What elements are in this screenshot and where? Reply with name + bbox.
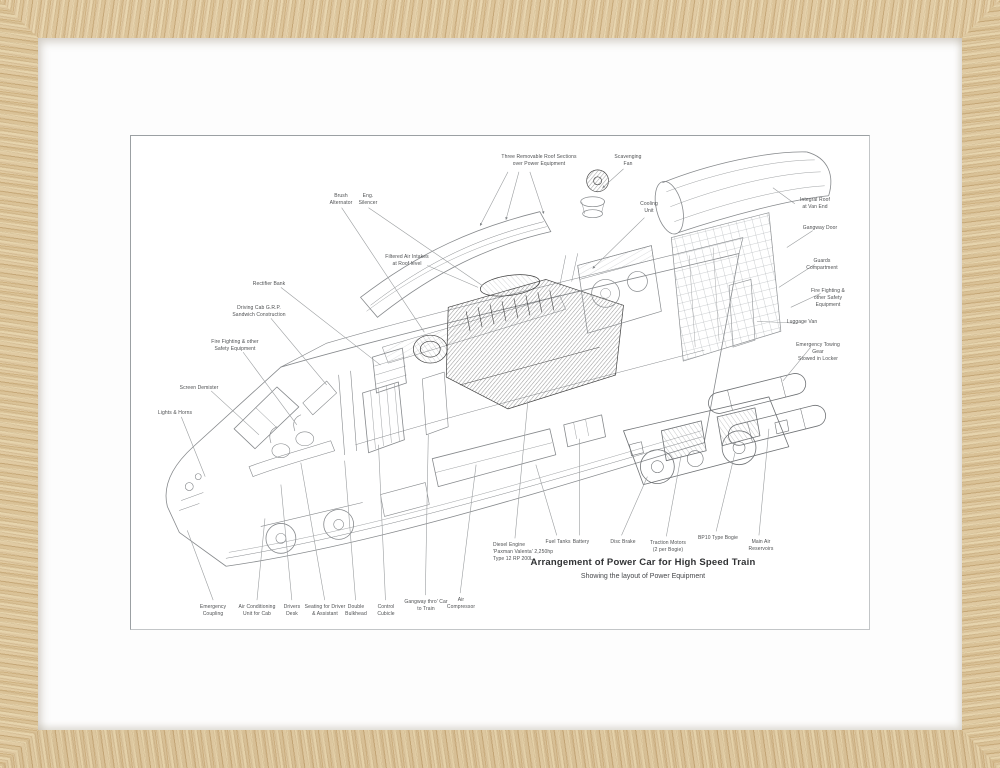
frame-left-rail <box>0 0 38 768</box>
label-gangway: Gangway thro' Car to Train <box>404 599 447 613</box>
label-fuel-tanks: Fuel Tanks <box>545 539 570 546</box>
label-guards-compartment: Guards Compartment <box>806 258 837 272</box>
label-rectifier-bank: Rectifier Bank <box>253 281 286 288</box>
label-main-air-reservoirs: Main Air Reservoirs <box>749 539 774 553</box>
label-emergency-coupling: Emergency Coupling <box>200 604 226 618</box>
label-roof-sections: Three Removable Roof Sections over Power… <box>501 154 576 168</box>
label-brush-alternator: Brush Alternator <box>330 193 353 207</box>
label-disc-brake: Disc Brake <box>610 539 635 546</box>
label-luggage-van: Luggage Van <box>787 319 817 326</box>
label-seating: Seating for Driver & Assistant <box>305 604 346 618</box>
label-filtered-air-intakes: Filtered Air Intakes at Roof level <box>385 254 428 268</box>
label-scavenging-fan: Scavenging Fan <box>614 154 641 168</box>
print-area: Three Removable Roof Sections over Power… <box>130 135 870 630</box>
label-air-compressor: Air Compressor <box>447 597 475 611</box>
label-drivers-desk: Drivers Desk <box>284 604 301 618</box>
label-fire-fighting-right: Fire Fighting & other Safety Equipment <box>808 288 849 308</box>
label-double-bulkhead: Double Bulkhead <box>345 604 367 618</box>
label-screen-demister: Screen Demister <box>180 385 219 392</box>
picture-frame: Three Removable Roof Sections over Power… <box>0 0 1000 768</box>
frame-top-rail <box>0 0 1000 38</box>
label-bp10-bogie: BP10 Type Bogie <box>698 535 738 542</box>
mat-board: Three Removable Roof Sections over Power… <box>38 38 962 730</box>
label-emergency-towing: Emergency Towing Gear Stowed in Locker <box>793 342 844 362</box>
label-driving-cab: Driving Cab G.R.P. Sandwich Construction <box>232 305 285 319</box>
label-integral-roof: Integral Roof at Van End <box>800 197 830 211</box>
label-fire-fighting-left: Fire Fighting & other Safety Equipment <box>211 339 258 353</box>
label-control-cubicle: Control Cubicle <box>377 604 394 618</box>
label-gangway-door: Gangway Door <box>803 225 838 232</box>
label-lights-horns: Lights & Horns <box>158 410 192 417</box>
frame-bottom-rail <box>0 730 1000 768</box>
print-subtitle: Showing the layout of Power Equipment <box>581 573 705 580</box>
print-title: Arrangement of Power Car for High Speed … <box>531 557 756 568</box>
label-cooling-unit: Cooling Unit <box>640 201 658 215</box>
frame-right-rail <box>962 0 1000 768</box>
label-eng-silencer: Eng. Silencer <box>359 193 378 207</box>
label-battery: Battery <box>573 539 590 546</box>
framed-print: Three Removable Roof Sections over Power… <box>0 0 1000 768</box>
luggage-van-drawing <box>671 213 781 361</box>
scavenging-fan-drawing <box>581 170 609 218</box>
label-traction-motors: Traction Motors (2 per Bogie) <box>650 540 686 554</box>
label-air-conditioning: Air Conditioning Unit for Cab <box>239 604 276 618</box>
bp10-bogie-drawing <box>623 397 788 485</box>
